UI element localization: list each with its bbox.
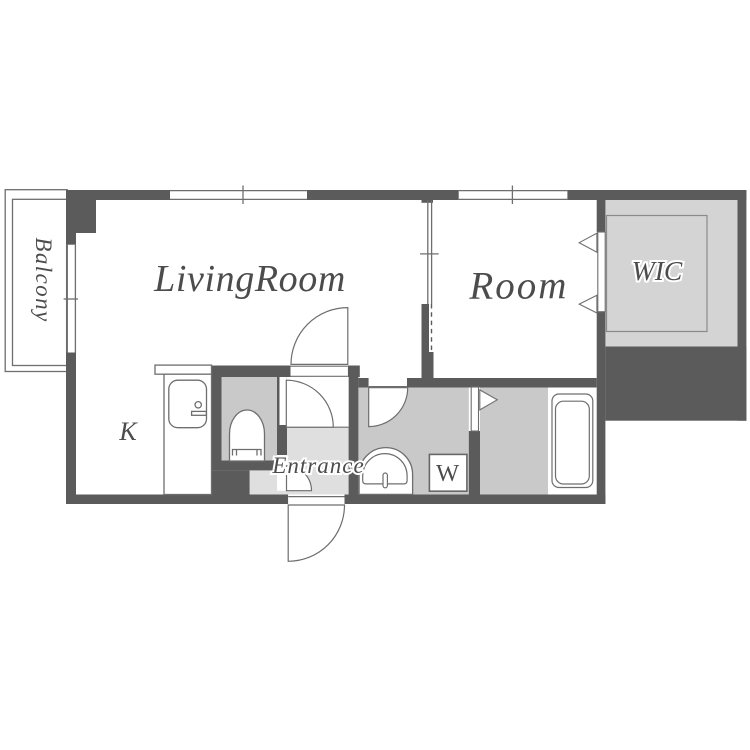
svg-text:W: W: [436, 460, 460, 487]
svg-text:WIC: WIC: [632, 255, 683, 286]
svg-text:Room: Room: [468, 265, 568, 308]
svg-text:Entrance: Entrance: [271, 453, 364, 478]
svg-text:Balcony: Balcony: [31, 237, 56, 322]
svg-text:LivingRoom: LivingRoom: [153, 258, 346, 300]
svg-text:K: K: [118, 417, 138, 446]
